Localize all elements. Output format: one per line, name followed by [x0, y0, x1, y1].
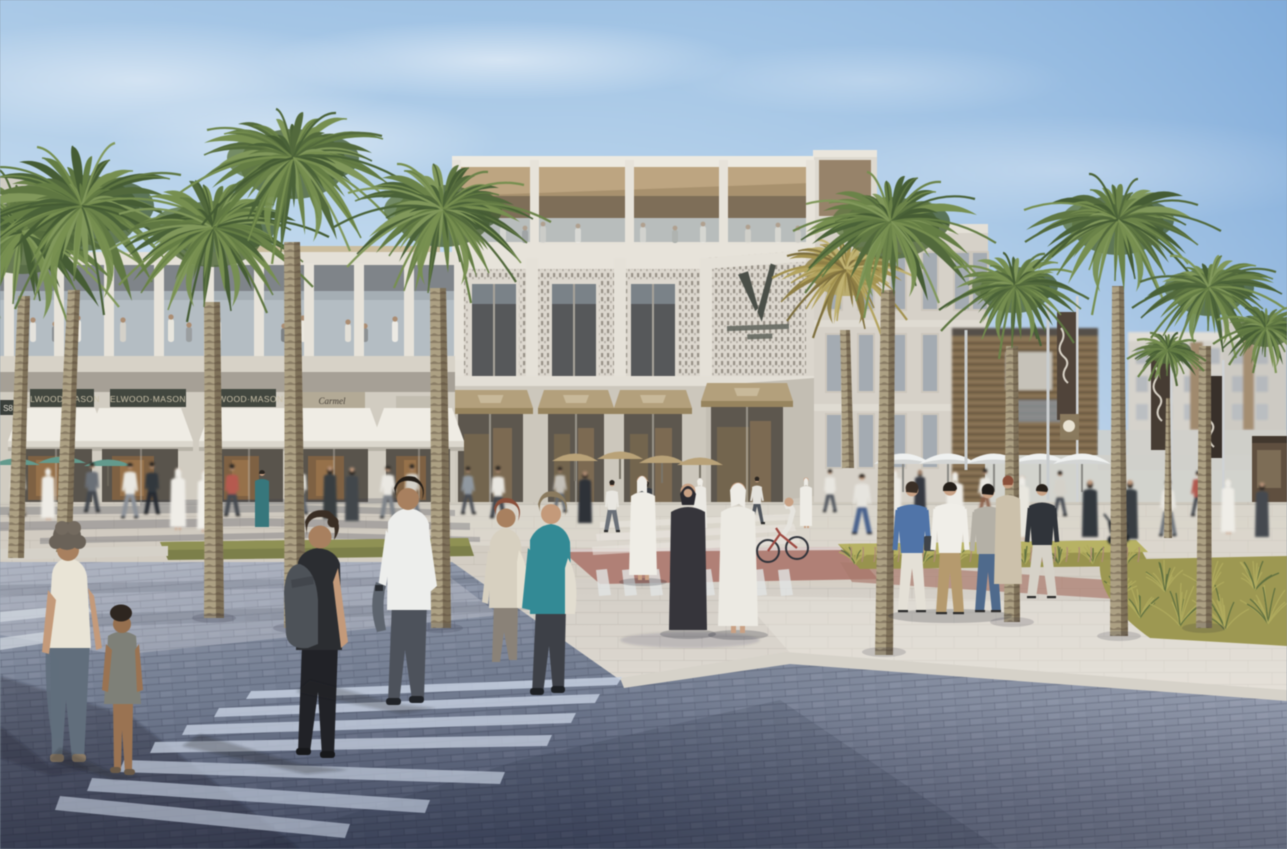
svg-text:Carmel: Carmel [319, 396, 346, 406]
svg-text:S8: S8 [3, 404, 13, 413]
svg-text:ELWOOD·MASON: ELWOOD·MASON [110, 394, 186, 404]
